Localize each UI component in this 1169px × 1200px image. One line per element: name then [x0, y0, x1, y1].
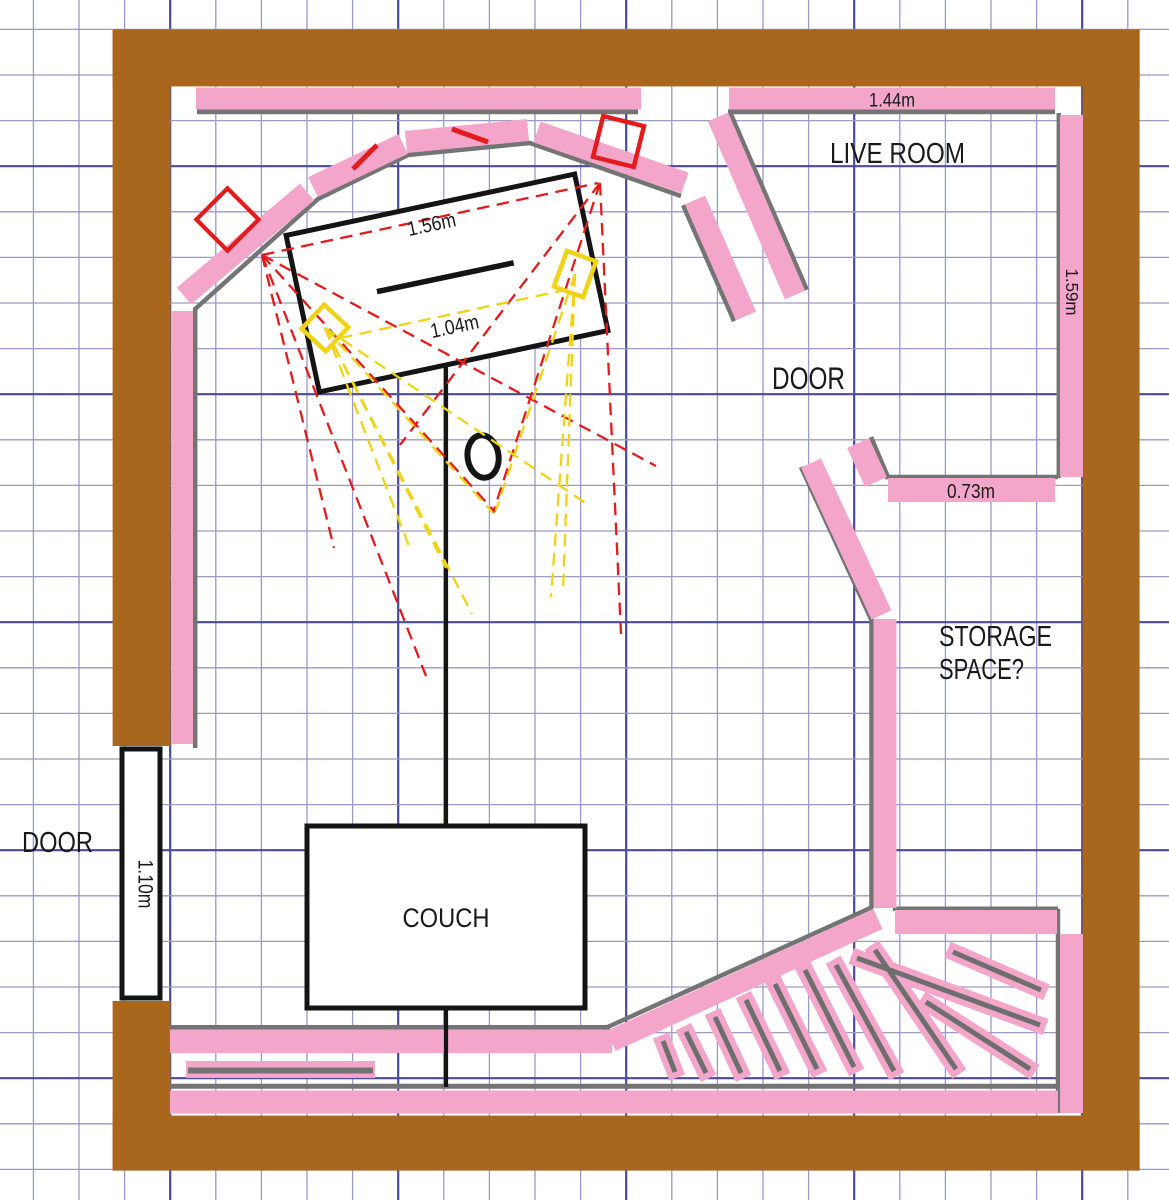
- svg-text:0.73m: 0.73m: [947, 480, 995, 503]
- svg-text:LIVE ROOM: LIVE ROOM: [830, 138, 965, 170]
- svg-text:DOOR: DOOR: [22, 827, 93, 859]
- svg-text:1.59m: 1.59m: [1062, 269, 1082, 316]
- svg-text:STORAGE: STORAGE: [939, 621, 1052, 653]
- svg-text:COUCH: COUCH: [403, 903, 490, 933]
- svg-text:1.10m: 1.10m: [134, 860, 157, 909]
- svg-text:DOOR: DOOR: [772, 360, 845, 396]
- svg-text:SPACE?: SPACE?: [939, 654, 1024, 686]
- svg-text:1.44m: 1.44m: [869, 90, 915, 112]
